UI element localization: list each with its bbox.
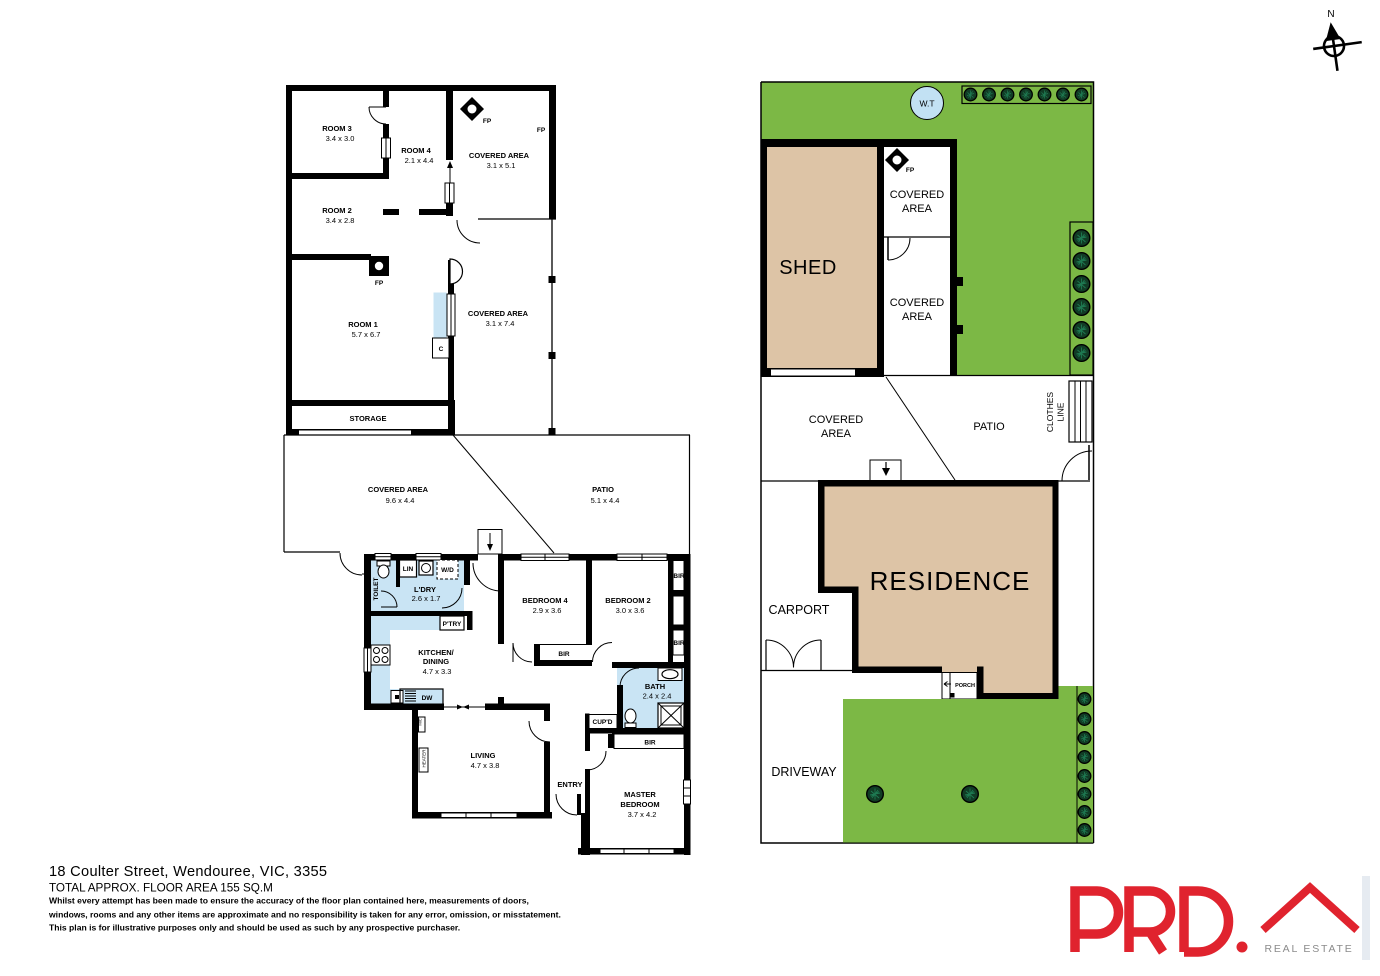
svg-text:W/D: W/D: [441, 567, 454, 574]
svg-text:5.7 x 6.7: 5.7 x 6.7: [352, 330, 381, 339]
svg-text:FP: FP: [483, 118, 492, 125]
svg-text:COVERED AREA: COVERED AREA: [468, 309, 529, 318]
svg-text:CARPORT: CARPORT: [769, 603, 830, 617]
svg-text:2.9 x 3.6: 2.9 x 3.6: [533, 606, 562, 615]
svg-text:ROOM 2: ROOM 2: [322, 206, 352, 215]
svg-text:Whilst every attempt has been: Whilst every attempt has been made to en…: [49, 896, 529, 906]
svg-text:18 Coulter Street, Wendouree,: 18 Coulter Street, Wendouree, VIC, 3355: [49, 864, 327, 880]
svg-text:2.1 x 4.4: 2.1 x 4.4: [405, 156, 434, 165]
svg-text:4.7 x 3.3: 4.7 x 3.3: [423, 667, 452, 676]
svg-text:9.6 x 4.4: 9.6 x 4.4: [386, 496, 415, 505]
svg-text:COVERED AREA: COVERED AREA: [469, 151, 530, 160]
svg-text:BEDROOM: BEDROOM: [620, 800, 659, 809]
svg-text:FP: FP: [537, 127, 546, 134]
svg-text:COVERED AREA: COVERED AREA: [368, 485, 429, 494]
svg-text:CUP'D: CUP'D: [593, 719, 613, 726]
svg-text:2.4 x 2.4: 2.4 x 2.4: [643, 692, 672, 701]
svg-text:PORCH: PORCH: [955, 683, 975, 689]
svg-text:3.4 x 3.0: 3.4 x 3.0: [326, 134, 355, 143]
svg-text:STORAGE: STORAGE: [350, 414, 387, 423]
svg-text:BEDROOM 2: BEDROOM 2: [605, 596, 650, 605]
svg-text:TOILET: TOILET: [373, 577, 380, 600]
svg-text:RESIDENCE: RESIDENCE: [870, 566, 1031, 596]
svg-text:ROOM 3: ROOM 3: [322, 124, 352, 133]
svg-text:DW: DW: [422, 695, 434, 702]
svg-text:REAL ESTATE: REAL ESTATE: [1264, 943, 1353, 955]
svg-text:AREA: AREA: [902, 203, 933, 215]
svg-text:BATH: BATH: [645, 682, 665, 691]
svg-text:BIR: BIR: [558, 651, 570, 658]
svg-text:This plan is for illustrative: This plan is for illustrative purposes o…: [49, 923, 460, 933]
svg-text:windows, rooms and any other i: windows, rooms and any other items are a…: [48, 910, 561, 920]
svg-text:COVERED: COVERED: [890, 297, 944, 309]
svg-text:COVERED: COVERED: [809, 414, 863, 426]
svg-text:LINE: LINE: [1056, 402, 1066, 421]
svg-text:KITCHEN/: KITCHEN/: [418, 648, 454, 657]
svg-text:3.4 x 2.8: 3.4 x 2.8: [326, 216, 355, 225]
svg-text:5.1 x 4.4: 5.1 x 4.4: [591, 496, 620, 505]
svg-text:FP: FP: [375, 280, 384, 287]
svg-text:4.7 x 3.8: 4.7 x 3.8: [471, 761, 500, 770]
svg-text:FP: FP: [906, 167, 915, 174]
svg-text:BIR: BIR: [673, 573, 685, 580]
svg-text:C: C: [439, 346, 444, 353]
svg-text:LIVING: LIVING: [470, 751, 495, 760]
svg-text:BEDROOM 4: BEDROOM 4: [522, 596, 568, 605]
svg-text:DRIVEWAY: DRIVEWAY: [771, 765, 837, 779]
svg-text:3.7 x 4.2: 3.7 x 4.2: [628, 810, 657, 819]
svg-text:CLOTHES: CLOTHES: [1045, 392, 1055, 432]
svg-text:AREA: AREA: [821, 428, 852, 440]
svg-text:PATIO: PATIO: [973, 421, 1005, 433]
svg-text:MASTER: MASTER: [624, 790, 656, 799]
svg-text:LIN: LIN: [403, 566, 414, 573]
svg-text:TOTAL APPROX. FLOOR AREA 155 S: TOTAL APPROX. FLOOR AREA 155 SQ.M: [49, 882, 273, 895]
svg-text:P'TRY: P'TRY: [443, 621, 462, 628]
svg-text:L'DRY: L'DRY: [414, 585, 436, 594]
svg-text:HEATER: HEATER: [422, 749, 427, 768]
svg-text:COVERED: COVERED: [890, 189, 944, 201]
svg-text:PATIO: PATIO: [592, 485, 614, 494]
svg-text:ROOM 1: ROOM 1: [348, 320, 378, 329]
svg-text:AREA: AREA: [902, 311, 933, 323]
svg-text:ENTRY: ENTRY: [557, 780, 582, 789]
svg-text:BIR: BIR: [673, 640, 685, 647]
svg-text:BIR: BIR: [644, 740, 656, 747]
svg-text:MIC: MIC: [418, 718, 423, 725]
svg-text:ROOM 4: ROOM 4: [401, 146, 431, 155]
svg-text:2.6 x 1.7: 2.6 x 1.7: [412, 594, 441, 603]
svg-text:3.1 x 7.4: 3.1 x 7.4: [486, 319, 515, 328]
svg-text:3.1 x 5.1: 3.1 x 5.1: [487, 161, 516, 170]
svg-text:SHED: SHED: [779, 257, 837, 279]
svg-text:DINING: DINING: [423, 657, 449, 666]
svg-text:W.T: W.T: [919, 99, 934, 109]
svg-text:N: N: [1327, 9, 1334, 20]
svg-text:3.0 x 3.6: 3.0 x 3.6: [616, 606, 645, 615]
